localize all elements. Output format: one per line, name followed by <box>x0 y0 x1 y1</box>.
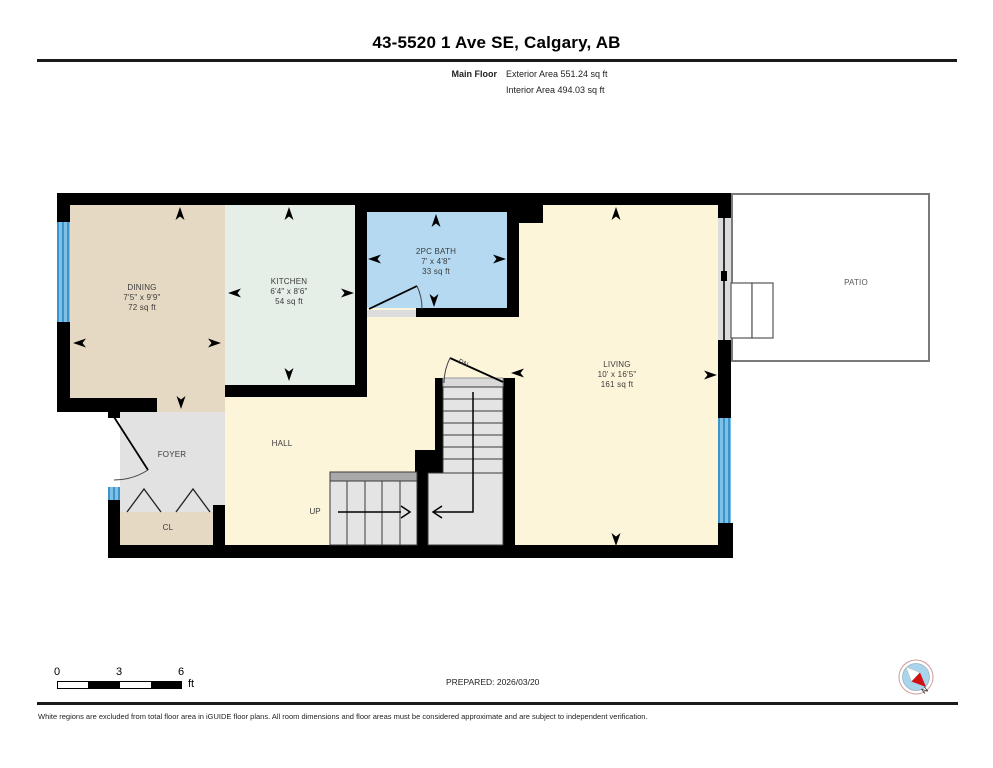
room-label-living: LIVING 10' x 16'5" 161 sq ft <box>567 360 667 390</box>
wall-right-lower <box>718 523 733 558</box>
room-label-kitchen: KITCHEN 6'4" x 8'6" 54 sq ft <box>239 277 339 307</box>
room-name: LIVING <box>567 360 667 370</box>
room-dims: 6'4" x 8'6" <box>239 287 339 297</box>
room-dims: 7'5" x 9'9" <box>92 293 192 303</box>
wall-bath-bottom <box>416 308 519 317</box>
scale-tick-0: 0 <box>47 666 67 678</box>
header-divider <box>37 59 957 62</box>
room-name: 2PC BATH <box>386 247 486 257</box>
wall-living-notch <box>507 193 543 223</box>
stairs-up-label: UP <box>295 507 335 516</box>
compass-north-label: N <box>920 685 930 696</box>
dining-passage-floor <box>157 398 225 412</box>
patio-door-stop <box>721 271 727 281</box>
room-name: KITCHEN <box>239 277 339 287</box>
scale-segment <box>88 682 120 688</box>
scale-tick-6: 6 <box>171 666 191 678</box>
scale-tick-3: 3 <box>109 666 129 678</box>
room-dims: 7' x 4'8" <box>386 257 486 267</box>
wall-stair-dn-right <box>503 378 515 545</box>
scale-unit: ft <box>188 678 194 690</box>
room-dims: 10' x 16'5" <box>567 370 667 380</box>
room-label-bath: 2PC BATH 7' x 4'8" 33 sq ft <box>386 247 486 277</box>
room-area: 161 sq ft <box>567 380 667 390</box>
room-label-hall: HALL <box>242 439 322 449</box>
foyer-floor <box>120 412 225 512</box>
room-label-patio: PATIO <box>806 278 906 288</box>
bath-door-threshold <box>367 310 416 317</box>
room-label-foyer: FOYER <box>132 450 212 460</box>
foyer-sidelight-window <box>108 487 120 500</box>
room-area: 72 sq ft <box>92 303 192 313</box>
scale-segment <box>151 682 182 688</box>
room-label-closet: CL <box>128 523 208 533</box>
wall-dining-bottom <box>57 398 157 412</box>
wall-right-upper <box>718 193 731 218</box>
room-area: 33 sq ft <box>386 267 486 277</box>
disclaimer-text: White regions are excluded from total fl… <box>38 712 648 721</box>
wall-bath-top <box>367 205 507 212</box>
living-window <box>718 418 731 523</box>
wall-stair-divider <box>417 473 428 545</box>
dining-window <box>57 222 70 322</box>
page-title: 43-5520 1 Ave SE, Calgary, AB <box>0 33 993 53</box>
floor-plan-page: 43-5520 1 Ave SE, Calgary, AB Main Floor… <box>0 0 993 768</box>
wall-top <box>57 193 731 205</box>
wall-closet-right <box>213 505 225 545</box>
footer-divider <box>37 702 958 705</box>
floor-label: Main Floor <box>377 69 497 79</box>
wall-foyer-left-upper <box>108 400 120 418</box>
wall-bottom <box>108 545 733 558</box>
wall-left-upper <box>57 193 70 222</box>
needle-south <box>906 667 920 682</box>
wall-stair-dn-left <box>435 378 443 450</box>
wall-stair-stub <box>415 450 443 473</box>
wall-right-mid <box>718 340 731 418</box>
wall-kitchen-bottom <box>225 385 355 397</box>
prepared-date: PREPARED: 2026/03/20 <box>446 677 539 687</box>
room-label-dining: DINING 7'5" x 9'9" 72 sq ft <box>92 283 192 313</box>
scale-bar <box>57 681 182 689</box>
wall-kitchen-bath <box>355 193 367 397</box>
room-name: DINING <box>92 283 192 293</box>
interior-area: Interior Area 494.03 sq ft <box>506 85 605 95</box>
room-area: 54 sq ft <box>239 297 339 307</box>
exterior-area: Exterior Area 551.24 sq ft <box>506 69 608 79</box>
